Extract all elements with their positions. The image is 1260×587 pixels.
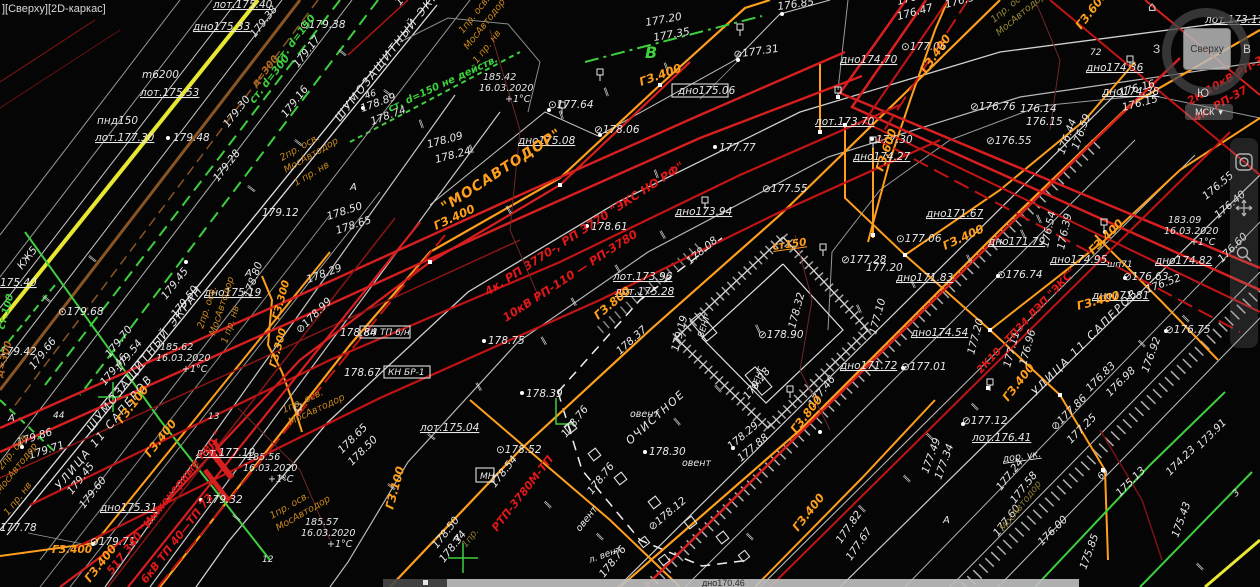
command-bar[interactable]: дно170.46	[383, 579, 1079, 587]
drawing-label: 178.67	[344, 367, 381, 379]
drawing-structure-outline	[716, 531, 729, 544]
drawing-label: 12	[262, 555, 274, 565]
ucs-button-label: МСК	[1195, 107, 1214, 117]
drawing-point-marker	[166, 136, 170, 140]
drawing-label: 178.39	[526, 388, 563, 400]
drawing-label: лот.176.41	[971, 432, 1031, 444]
command-bar-grip[interactable]	[383, 579, 447, 587]
drawing-label: 179.48	[173, 132, 210, 144]
drawing-label: ⊙177.64	[548, 99, 594, 111]
drawing-label: ⊘178.12	[646, 495, 689, 534]
drawing-tick-mark: ∥	[418, 119, 426, 130]
drawing-label: ⊘176.76	[970, 101, 1016, 113]
drawing-point-marker	[713, 145, 717, 149]
drawing-label: ⊙178.52	[496, 444, 542, 456]
drawing-tick-mark: ∥	[540, 336, 549, 347]
drawing-label: 13	[208, 412, 220, 422]
viewcube-ucs-button[interactable]: МСК ▾	[1185, 104, 1233, 120]
drawing-label: 176.15	[1026, 116, 1063, 128]
drawing-label: +1°С	[182, 364, 208, 375]
drawing-label: лот.173.96	[612, 271, 673, 283]
drawing-label: ⊙176.74	[997, 269, 1043, 281]
drawing-tick-mark: ∥	[1195, 562, 1205, 572]
drawing-point-marker	[482, 339, 486, 343]
drawing-label: 185.57	[305, 517, 338, 528]
drawing-label: лот.175.40	[212, 0, 273, 11]
drawing-benchmark-icon	[820, 244, 826, 250]
drawing-label: 174.23	[1164, 444, 1198, 478]
drawing-label: ⊙177.01	[901, 361, 947, 373]
drawing-label: 178.80	[242, 260, 266, 299]
drawing-label: 179.19	[669, 314, 690, 353]
drawing-node-marker	[871, 233, 875, 237]
drawing-tick-mark: ∥	[902, 474, 912, 484]
drawing-label: 176.00	[1036, 513, 1071, 548]
drawing-label: ГЗ.400	[789, 491, 827, 534]
drawing-label: 3	[1231, 488, 1242, 499]
drawing-label: ⊘178.06	[594, 124, 640, 136]
drawing-label: 173.91	[1195, 417, 1229, 451]
cad-application-window: ∥∥∥∥∥∥∥∥∥∥∥∥∥∥∥∥∥∥∥∥∥∥∥∥∥∥∥∥∥∥∥∥∥∥∥∥∥∥∥∥…	[0, 0, 1260, 587]
drawing-label: 178.75	[488, 335, 525, 347]
drawing-label: 179.16	[279, 83, 311, 120]
drawing-label: 176.14	[1020, 103, 1057, 115]
drawing-benchmark-icon	[987, 379, 993, 385]
viewcube-west-label[interactable]: З	[1153, 42, 1160, 56]
drawing-label: 72	[1090, 48, 1102, 58]
drawing-point-marker	[818, 430, 822, 434]
drawing-point-marker	[643, 450, 647, 454]
drawing-line	[0, 20, 95, 82]
drawing-line	[0, 0, 300, 390]
drawing-label: дно171.79	[987, 236, 1046, 248]
drawing-label: 183.09	[1168, 215, 1201, 226]
drawing-structure-outline	[588, 448, 601, 461]
drawing-node-marker	[658, 83, 662, 87]
drawing-label: 177.20	[644, 11, 683, 29]
drawing-label: 177.10	[867, 297, 888, 336]
drawing-label: m6200	[142, 69, 179, 81]
drawing-node-marker	[1058, 393, 1062, 397]
drawing-tick-mark: ∥	[745, 532, 755, 542]
drawing-label: ⊙179.68	[58, 306, 104, 318]
drawing-label: 44	[53, 411, 65, 421]
navigation-bar	[1230, 138, 1258, 348]
drawing-label: 179.28	[211, 147, 243, 184]
drawing-label: 177.77	[719, 142, 756, 154]
drawing-label: ГЗ.400	[1085, 216, 1126, 257]
command-bar-grip-icon	[423, 580, 428, 585]
drawing-label: 185.62	[160, 342, 193, 353]
drawing-line	[0, 0, 180, 235]
drawing-label: дно174.95	[1049, 254, 1108, 266]
drawing-benchmark-icon	[787, 386, 793, 392]
drawing-label: овент	[574, 504, 601, 534]
drawing-tick-mark: ∥	[558, 110, 566, 121]
drawing-tick-mark: ∥	[659, 230, 668, 241]
drawing-label: ГЗ.100	[382, 465, 407, 511]
drawing-label: ⊘177.12	[962, 415, 1008, 427]
drawing-label: 179.12	[262, 207, 299, 219]
drawing-structure-outline	[614, 472, 627, 485]
drawing-tick-mark: ∥	[246, 184, 257, 194]
drawing-label: 176.92	[1140, 335, 1164, 374]
drawing-benchmark-icon	[737, 24, 743, 30]
drawing-label: 16.03.2020	[156, 353, 210, 364]
drawing-label: ГЗ.400	[52, 544, 92, 556]
drawing-benchmark-icon	[597, 69, 603, 75]
drawing-label: дно171.67	[925, 208, 984, 220]
pan-icon[interactable]	[1234, 198, 1254, 218]
drawing-label: ⊘178.99	[294, 295, 335, 336]
drawing-tick-mark: ∥	[337, 48, 348, 58]
drawing-label: +1°С	[327, 539, 353, 550]
drawing-node-marker	[428, 260, 432, 264]
drawing-tick-mark: ∥	[970, 402, 980, 412]
drawing-label: РТП-3780М-ТП	[489, 453, 556, 534]
viewcube-east-label[interactable]: В	[1243, 42, 1251, 56]
drawing-tick-mark: ∥	[1137, 339, 1147, 349]
chevron-down-icon: ▾	[1218, 107, 1223, 118]
drawing-structure-outline	[648, 496, 661, 509]
drawing-node-marker	[903, 253, 907, 257]
drawing-node-marker	[558, 183, 562, 187]
drawing-point-marker	[870, 137, 874, 141]
drawing-line	[1100, 430, 1162, 560]
drawing-canvas[interactable]: ∥∥∥∥∥∥∥∥∥∥∥∥∥∥∥∥∥∥∥∥∥∥∥∥∥∥∥∥∥∥∥∥∥∥∥∥∥∥∥∥…	[0, 0, 1260, 587]
drawing-label: 175.13	[1114, 465, 1148, 499]
drawing-label: ⊙177.06	[896, 233, 942, 245]
drawing-label: 16.03.2020	[479, 83, 533, 94]
drawing-label: 175.43	[1170, 500, 1194, 539]
drawing-point-marker	[184, 260, 188, 264]
drawing-benchmark-icon	[702, 197, 708, 203]
drawing-label: 69	[1096, 467, 1111, 482]
drawing-label: 185.42	[483, 72, 516, 83]
drawing-label: ⊘176.55	[986, 135, 1032, 147]
drawing-label: пнд150	[97, 115, 138, 127]
drawing-label: дно174.70	[839, 54, 898, 66]
drawing-line	[0, 30, 120, 108]
command-bar-field[interactable]: дно170.46	[447, 579, 1079, 587]
drawing-label: 177.78	[0, 522, 37, 534]
drawing-label: дно175.33	[192, 21, 250, 33]
drawing-tick-mark: ∥	[595, 532, 605, 542]
drawing-label: овент	[682, 458, 711, 469]
drawing-label: ⊘177.55	[762, 183, 808, 195]
drawing-tick-mark: ∥	[672, 417, 682, 427]
drawing-label: КН БР-1	[388, 368, 425, 378]
drawing-label: ⊘177.31	[733, 43, 780, 61]
drawing-tick-mark: ∥	[475, 382, 484, 393]
drawing-label: ст.100	[0, 293, 16, 331]
drawing-label: лот.175.53	[139, 87, 199, 99]
viewport-controls-label[interactable]: ][Сверху][2D-каркас]	[2, 3, 106, 15]
drawing-label: 175.40	[0, 277, 37, 289]
drawing-line	[618, 95, 1115, 587]
drawing-point-marker	[520, 391, 524, 395]
viewcube: ⌂ Сверху З В Ю МСК ▾	[1145, 0, 1260, 132]
zoom-icon[interactable]	[1234, 244, 1254, 264]
navigation-wheel-icon[interactable]	[1234, 152, 1254, 172]
drawing-node-marker	[988, 328, 992, 332]
drawing-label: дно171.83	[895, 272, 953, 284]
drawing-label: 177.20	[965, 317, 986, 356]
drawing-label: ГЗ.600	[1072, 0, 1110, 32]
drawing-label: дно173.94	[674, 206, 732, 218]
drawing-label: А	[452, 533, 460, 544]
drawing-label: +1°С	[1190, 237, 1216, 248]
drawing-label: дно174.82	[1154, 255, 1213, 267]
drawing-label: 177.35	[652, 26, 691, 44]
drawing-label: 16.03.2020	[243, 463, 297, 474]
drawing-label: дно174.54	[910, 327, 968, 339]
drawing-label: лот.173.70	[814, 116, 875, 128]
drawing-label: 1пр.	[460, 526, 482, 550]
drawing-line	[838, 0, 848, 90]
drawing-label: 16.03.2020	[1164, 226, 1218, 237]
drawing-label: +1°С	[505, 94, 531, 105]
drawing-label: 176.85	[777, 0, 815, 13]
drawing-label: 16.03.2020	[301, 528, 355, 539]
drawing-label: В	[645, 43, 657, 62]
drawing-label: шп71	[1107, 260, 1133, 270]
drawing-label: 178.37	[614, 324, 650, 358]
drawing-label: 176.39	[1055, 212, 1074, 251]
drawing-label: дно174.36	[1085, 62, 1144, 74]
drawing-label: КН ТП 6/н	[364, 328, 410, 338]
drawing-label: А	[942, 515, 950, 526]
drawing-label: ⊘178.90	[758, 329, 804, 341]
drawing-label: А	[7, 413, 15, 424]
drawing-label: лот.177.30	[94, 132, 155, 144]
drawing-label: дно171.72	[839, 360, 898, 372]
drawing-label: 178.30	[649, 446, 686, 458]
drawing-tick-mark: ∥	[543, 500, 553, 510]
drawing-structure-outline	[738, 550, 749, 561]
viewcube-home-icon[interactable]: ⌂	[1148, 0, 1156, 15]
drawing-node-marker	[986, 386, 990, 390]
drawing-label: ⊘176.75	[1165, 324, 1211, 336]
drawing-label: А	[244, 268, 252, 279]
drawing-label: 178.32	[786, 291, 807, 330]
drawing-label: дно175.06	[677, 85, 736, 97]
viewcube-south-label[interactable]: Ю	[1197, 86, 1209, 100]
drawing-label: А	[349, 182, 357, 193]
drawing-label: лот.175.04	[419, 422, 479, 434]
drawing-line	[1205, 540, 1260, 587]
drawing-tick-mark: ∥	[603, 87, 611, 98]
drawing-label: +1°С	[268, 474, 294, 485]
drawing-label: 178.08	[684, 234, 720, 267]
viewcube-top-face[interactable]: Сверху	[1183, 28, 1231, 70]
drawing-label: 178.29	[305, 262, 344, 286]
drawing-node-marker	[818, 130, 822, 134]
